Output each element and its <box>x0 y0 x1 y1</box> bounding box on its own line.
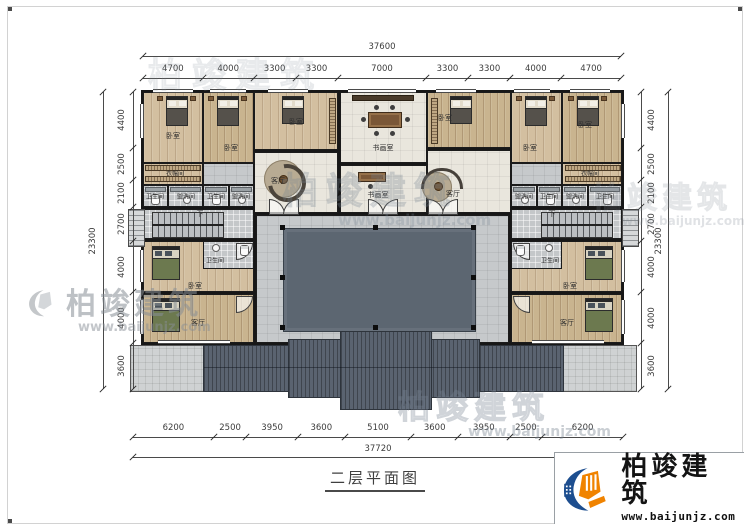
room-label-living: 客厅 <box>191 318 205 328</box>
room-label-study: 书画室 <box>373 143 394 153</box>
nightstand <box>157 96 163 101</box>
nightstand <box>241 96 247 101</box>
room-label-bath: 卫生间 <box>146 192 164 201</box>
column <box>471 225 476 230</box>
chair <box>368 184 373 189</box>
dim-line <box>143 56 621 57</box>
window <box>140 104 144 138</box>
room-label-wash: 盥洗间 <box>232 192 250 201</box>
stair-rail <box>541 224 613 226</box>
chair <box>390 105 395 110</box>
logo-url: www.baijunjz.com <box>621 510 740 523</box>
stair-label-down: 下 <box>549 209 556 219</box>
room-label-wash: 盥洗间 <box>177 192 195 201</box>
window <box>210 89 246 93</box>
dim-value: 4700 <box>162 64 184 74</box>
desk <box>368 112 402 128</box>
window <box>436 89 476 93</box>
dim-value: 4000 <box>117 307 127 329</box>
entry-steps <box>622 209 639 247</box>
dim-value: 4400 <box>647 109 657 131</box>
logo-panel: 柏竣建筑 www.baijunjz.com <box>554 452 744 524</box>
bed <box>166 96 188 126</box>
room-label-bedroom: 卧室 <box>224 143 238 153</box>
bed <box>217 96 239 126</box>
window <box>621 104 625 138</box>
terrace <box>130 345 206 392</box>
window <box>570 89 610 93</box>
bed-blanket <box>586 258 612 279</box>
bed <box>450 96 472 124</box>
window <box>140 250 144 282</box>
window <box>348 89 416 93</box>
window <box>140 300 144 334</box>
dim-value: 2500 <box>515 423 537 433</box>
stair-rail <box>152 224 224 226</box>
chair <box>405 117 410 122</box>
room-label-cloak: 衣帽间 <box>166 169 184 178</box>
bed-blanket <box>153 310 179 331</box>
room-label-bath: 卫生间 <box>540 192 558 201</box>
window <box>621 300 625 334</box>
cabinet <box>352 95 414 101</box>
room-label-bedroom: 卧室 <box>438 113 452 123</box>
window <box>158 340 230 344</box>
dim-value: 3950 <box>261 423 283 433</box>
dim-value: 3300 <box>264 64 286 74</box>
dim-value: 4000 <box>217 64 239 74</box>
room-label-living: 客厅 <box>446 189 460 199</box>
room-corridor <box>203 163 254 185</box>
room-label-bath: 卫生间 <box>541 256 559 265</box>
dim-line <box>143 78 621 79</box>
dim-line <box>133 437 623 438</box>
dim-value: 6200 <box>163 423 185 433</box>
toilet <box>240 245 249 256</box>
dim-value: 6200 <box>572 423 594 433</box>
dim-value: 2100 <box>117 183 127 205</box>
room-label-study: 书画室 <box>368 190 389 200</box>
wardrobe <box>329 98 336 144</box>
nightstand <box>208 96 214 101</box>
coffee-table <box>434 182 443 191</box>
column <box>373 225 378 230</box>
bed-blanket <box>451 108 471 123</box>
logo-icon <box>559 465 614 513</box>
window <box>268 89 308 93</box>
column <box>280 225 285 230</box>
stair-label-down: 下 <box>197 209 204 219</box>
dim-value: 3600 <box>647 355 657 377</box>
bed-blanket <box>167 108 187 125</box>
wardrobe <box>431 98 438 144</box>
dim-value: 4400 <box>117 109 127 131</box>
dim-total: 23300 <box>654 227 664 254</box>
column <box>471 275 476 280</box>
column <box>471 325 476 330</box>
bed-blanket <box>586 310 612 331</box>
window <box>153 89 193 93</box>
bed <box>525 96 547 126</box>
lower-roof <box>340 331 432 410</box>
dim-value: 4000 <box>525 64 547 74</box>
chair <box>390 131 395 136</box>
bed <box>152 246 180 280</box>
dim-value: 2500 <box>647 153 657 175</box>
dim-value: 4000 <box>647 256 657 278</box>
dim-value: 3300 <box>479 64 501 74</box>
chair <box>374 105 379 110</box>
chair <box>361 117 366 122</box>
dim-value: 2700 <box>117 213 127 235</box>
room-label-living: 客厅 <box>560 318 574 328</box>
room-label-bedroom: 卧室 <box>289 117 303 127</box>
bed-blanket <box>153 258 179 279</box>
dim-line <box>133 457 623 458</box>
dim-value: 4000 <box>117 256 127 278</box>
dim-value: 4000 <box>647 307 657 329</box>
bed <box>152 298 180 332</box>
room-label-bedroom: 卧室 <box>523 143 537 153</box>
sink <box>545 244 553 252</box>
window <box>514 89 550 93</box>
window <box>621 250 625 282</box>
desk <box>358 172 386 182</box>
drawing-title: 二层平面图 <box>325 467 425 492</box>
sink <box>212 244 220 252</box>
logo-text-block: 柏竣建筑 www.baijunjz.com <box>621 454 740 524</box>
bed <box>585 298 613 332</box>
dim-value: 3300 <box>306 64 328 74</box>
terrace <box>560 345 637 392</box>
column <box>280 325 285 330</box>
room-corridor <box>511 163 562 185</box>
bed-blanket <box>526 108 546 125</box>
room-label-cloak: 衣帽间 <box>581 169 599 178</box>
nightstand <box>549 96 555 101</box>
dim-line <box>103 92 104 389</box>
room-label-bedroom: 卧室 <box>188 281 202 291</box>
nightstand <box>516 96 522 101</box>
dim-value: 3950 <box>473 423 495 433</box>
window <box>532 340 604 344</box>
bed-blanket <box>218 108 238 125</box>
nightstand <box>568 96 574 101</box>
dim-total: 37600 <box>368 42 395 52</box>
bed <box>585 246 613 280</box>
dim-value: 3300 <box>437 64 459 74</box>
room-label-wash: 盥洗间 <box>515 192 533 201</box>
chair <box>374 131 379 136</box>
dim-total: 23300 <box>88 227 98 254</box>
nightstand <box>190 96 196 101</box>
room-label-bath: 卫生间 <box>596 192 614 201</box>
logo-name: 柏竣建筑 <box>621 454 740 509</box>
dim-value: 3600 <box>424 423 446 433</box>
dim-value: 3600 <box>117 355 127 377</box>
roof-ridge <box>204 367 561 368</box>
dim-value: 2500 <box>117 153 127 175</box>
dim-value: 2100 <box>647 183 657 205</box>
dim-value: 7000 <box>371 64 393 74</box>
room-label-wash: 盥洗间 <box>566 192 584 201</box>
room-label-living: 客厅 <box>271 176 285 186</box>
room-label-bedroom: 卧室 <box>166 131 180 141</box>
dim-value: 3600 <box>310 423 332 433</box>
room-label-bedroom: 卧室 <box>563 281 577 291</box>
inner-courtyard <box>283 228 476 332</box>
dim-total: 37720 <box>364 444 391 454</box>
room-label-bath: 卫生间 <box>206 256 224 265</box>
toilet <box>516 245 525 256</box>
column <box>373 325 378 330</box>
column <box>280 275 285 280</box>
room-label-bedroom: 卧室 <box>578 120 592 130</box>
nightstand <box>601 96 607 101</box>
dim-value: 5100 <box>367 423 389 433</box>
dim-value: 2500 <box>219 423 241 433</box>
room-label-bath: 卫生间 <box>207 192 225 201</box>
dim-line <box>668 92 669 389</box>
dim-value: 4700 <box>580 64 602 74</box>
